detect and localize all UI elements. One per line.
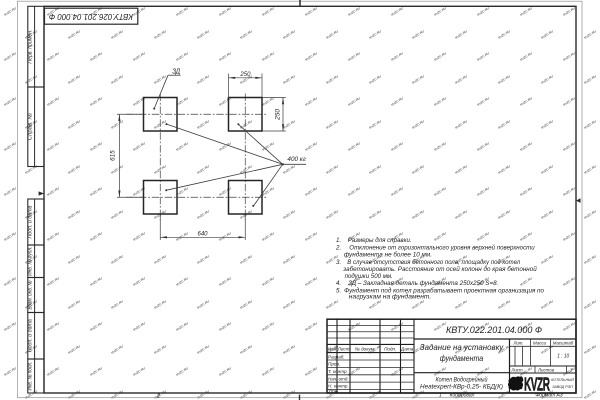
svg-text:3.: 3. bbox=[336, 259, 341, 266]
svg-text:250: 250 bbox=[239, 72, 251, 78]
svg-text:Копировал: Копировал bbox=[450, 393, 475, 399]
svg-text:2.: 2. bbox=[335, 244, 341, 251]
svg-text:Изм: Изм bbox=[328, 347, 337, 352]
svg-text:Взам. инв. №: Взам. инв. № bbox=[28, 280, 34, 310]
svg-text:Нач. отд.: Нач. отд. bbox=[328, 376, 349, 381]
svg-text:Дата: Дата bbox=[400, 347, 414, 352]
svg-text:Формат А3: Формат А3 bbox=[535, 393, 563, 399]
svg-text:Масса: Масса bbox=[533, 341, 547, 346]
svg-text:Инв. № подл.: Инв. № подл. bbox=[28, 362, 34, 391]
svg-text:Подп. и дата: Подп. и дата bbox=[28, 319, 34, 352]
svg-text:Подп.: Подп. bbox=[384, 347, 396, 352]
svg-text:В случае отсутствия бетонного: В случае отсутствия бетонного пола, площ… bbox=[347, 259, 520, 266]
svg-text:Подп. и дата: Подп. и дата bbox=[28, 205, 34, 238]
svg-text:1.: 1. bbox=[336, 237, 341, 244]
svg-text:ЗД – Закладная деталь фундамен: ЗД – Закладная деталь фундамента 250х250… bbox=[348, 280, 498, 287]
svg-text:Отклонение от горизонтального: Отклонение от горизонтального уровня вер… bbox=[349, 244, 535, 251]
svg-text:Лист: Лист bbox=[337, 347, 350, 352]
svg-text:фундамента: фундамента bbox=[440, 354, 484, 363]
svg-text:Heatexpert-КВр-0,25- КБД(К): Heatexpert-КВр-0,25- КБД(К) bbox=[420, 383, 503, 390]
svg-text:ЗАВОД РЭП: ЗАВОД РЭП bbox=[552, 385, 573, 389]
svg-text:КОТЕЛЬНЫЙ: КОТЕЛЬНЫЙ bbox=[551, 378, 574, 382]
svg-text:250: 250 bbox=[275, 108, 281, 121]
svg-text:Задание на установку: Задание на установку bbox=[420, 343, 504, 352]
svg-text:Лит.: Лит. bbox=[512, 341, 523, 346]
svg-text:Пров.: Пров. bbox=[328, 362, 340, 367]
svg-text:Справ. №: Справ. № bbox=[28, 113, 34, 141]
svg-text:640: 640 bbox=[197, 231, 208, 237]
svg-text:забетонировать. Расстояние от: забетонировать. Расстояние от осей колон… bbox=[342, 266, 537, 273]
svg-text:КВТУ.022.201.04.000 Ф: КВТУ.022.201.04.000 Ф bbox=[446, 325, 542, 336]
svg-text:Лист: Лист bbox=[510, 367, 523, 372]
svg-text:фундамента не более 10 мм.: фундамента не более 10 мм. bbox=[344, 252, 432, 259]
svg-text:400 кг: 400 кг bbox=[287, 157, 306, 163]
svg-text:Размеры для справки.: Размеры для справки. bbox=[348, 237, 412, 244]
svg-text:Листов: Листов bbox=[537, 367, 555, 372]
svg-text:2: 2 bbox=[156, 394, 160, 400]
svg-text:подушки 500 мм.: подушки 500 мм. bbox=[345, 273, 393, 280]
svg-text:Перв. примен.: Перв. примен. bbox=[28, 30, 34, 64]
svg-text:Котел Водогрейный: Котел Водогрейный bbox=[436, 376, 488, 383]
svg-text:1: 1 bbox=[439, 393, 442, 399]
svg-text:Масштаб: Масштаб bbox=[553, 341, 574, 346]
svg-text:Разраб.: Разраб. bbox=[328, 354, 345, 359]
svg-text:Утв.: Утв. bbox=[328, 389, 338, 394]
svg-text:Инв. № дубл.: Инв. № дубл. bbox=[28, 247, 34, 276]
svg-text:4.: 4. bbox=[336, 280, 341, 287]
svg-text:5.: 5. bbox=[336, 287, 341, 294]
svg-text:KVZR: KVZR bbox=[524, 374, 550, 395]
svg-text:Т. контр.: Т. контр. bbox=[328, 369, 348, 374]
svg-text:615: 615 bbox=[111, 150, 117, 161]
svg-text:КВТУ.026.201.04.000 Ф: КВТУ.026.201.04.000 Ф bbox=[48, 12, 133, 21]
svg-text:ЗД: ЗД bbox=[172, 66, 180, 75]
svg-text:нагрузкам на фундамент.: нагрузкам на фундамент. bbox=[349, 294, 432, 301]
svg-text:1 : 10: 1 : 10 bbox=[557, 354, 569, 360]
svg-text:№ докум.: № докум. bbox=[355, 347, 375, 352]
